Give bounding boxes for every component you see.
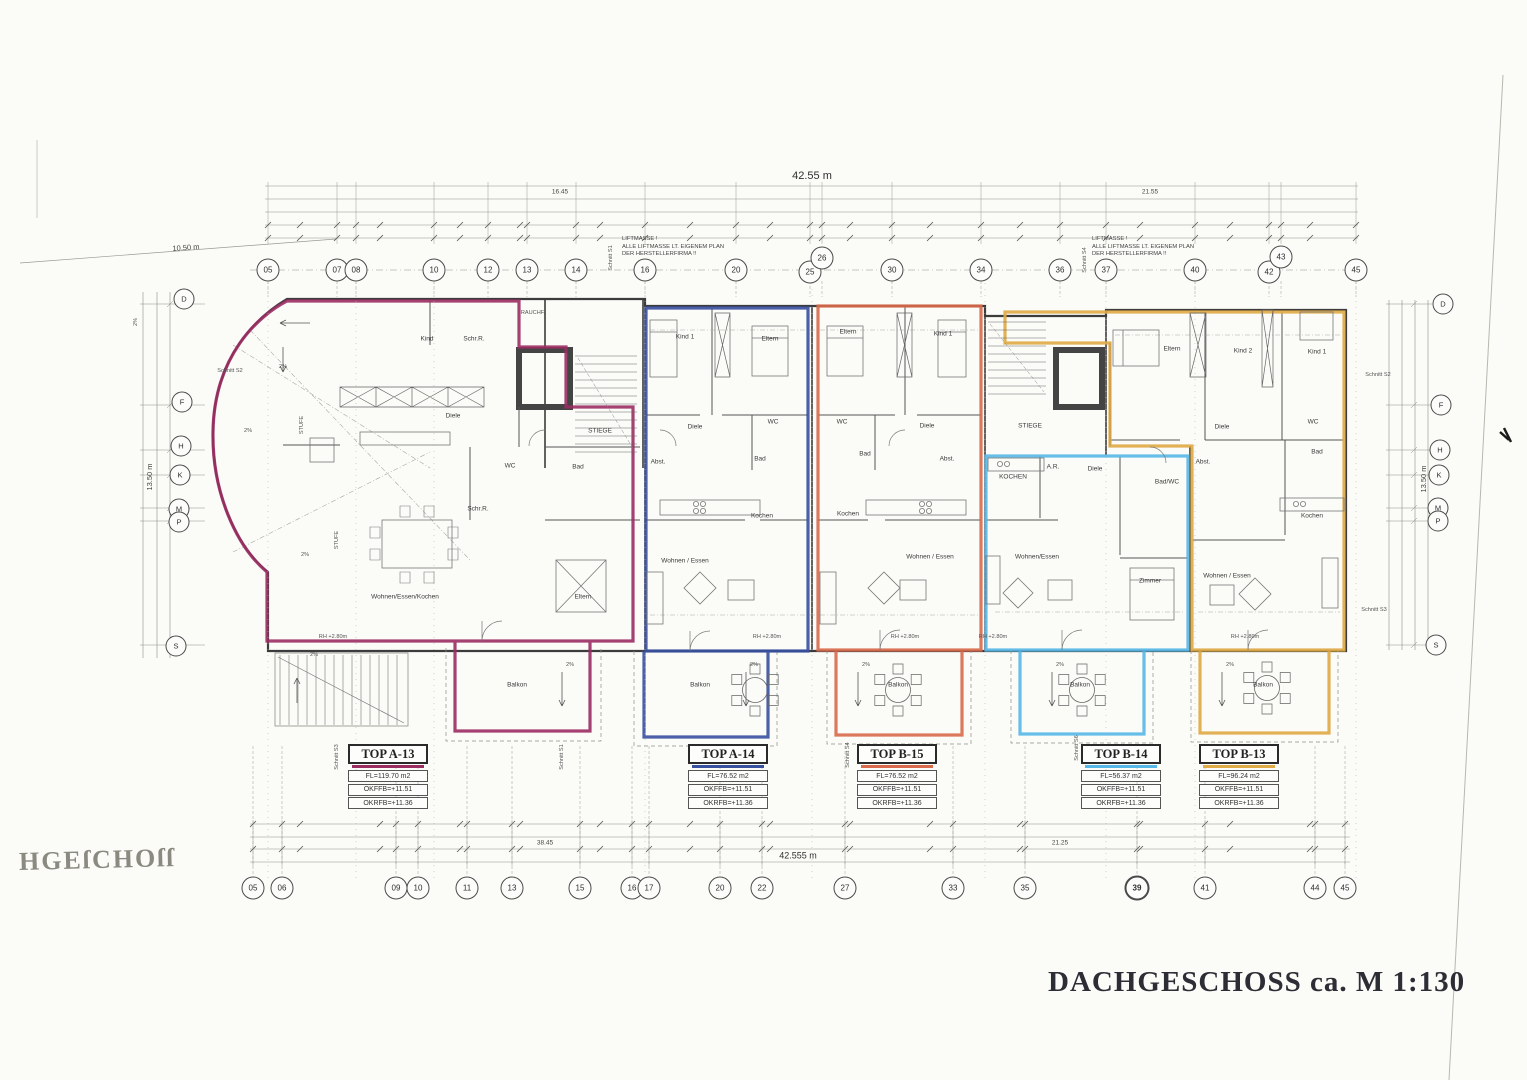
lift-note: LIFTMASSE ! ALLE LIFTMASSE LT. EIGENEM P… (1092, 236, 1194, 259)
lift-note-line: ALLE LIFTMASSE LT. EIGENEM PLAN (1092, 244, 1194, 252)
slope-label: 2% (134, 318, 140, 326)
stair-label: STIEGE (588, 429, 612, 436)
room-height-label: RH +2.80m (891, 635, 919, 641)
room-label: Bad (859, 452, 871, 459)
room-label: WC (768, 420, 779, 427)
room-label: Abst. (1196, 460, 1211, 467)
grid-bubble: 10 (407, 877, 430, 900)
grid-letter: H (171, 436, 192, 457)
room-height-label: RH +2.80m (319, 635, 347, 641)
grid-letter: K (170, 465, 191, 486)
grid-bubble: 13 (516, 259, 539, 282)
room-height-label: RH +2.80m (1231, 635, 1259, 641)
step-label: STUFE (335, 531, 341, 549)
room-label: Kind 1 (934, 332, 952, 339)
unit-color-bar (1085, 765, 1157, 768)
grid-bubble: 17 (638, 877, 661, 900)
grid-bubble: 20 (725, 259, 748, 282)
unit-color-bar (861, 765, 933, 768)
room-label: Kochen (1301, 514, 1323, 521)
grid-letter: F (172, 392, 193, 413)
grid-bubble: 34 (970, 259, 993, 282)
room-label: Wohnen / Essen (1203, 574, 1251, 581)
room-label: Kind 1 (676, 335, 694, 342)
room-label: Diele (688, 425, 703, 432)
unit-okffb: OKFFB=+11.51 (348, 784, 428, 796)
sheet-corner-label: HGEſCHOſſ (19, 843, 176, 877)
unit-area: FL=56.37 m2 (1081, 770, 1161, 782)
room-height-label: RH +2.80m (979, 635, 1007, 641)
room-label: Kind 2 (1234, 349, 1252, 356)
room-label: Kind 1 (1308, 350, 1326, 357)
room-label: Wohnen/Essen (1015, 555, 1059, 562)
grid-letter: P (1428, 511, 1449, 532)
slope-label: 2% (1056, 663, 1064, 669)
grid-bubble: 44 (1304, 877, 1327, 900)
unit-okrfb: OKRFB=+11.36 (857, 797, 937, 809)
room-label: Wohnen / Essen (906, 555, 954, 562)
room-label: Diele (1088, 467, 1103, 474)
room-label: Bad/WC (1155, 480, 1179, 487)
unit-okffb: OKFFB=+11.51 (857, 784, 937, 796)
slope-label: 2% (750, 663, 758, 669)
section-label: Schnitt S2 (217, 369, 243, 375)
grid-letter: S (1426, 635, 1447, 656)
grid-bubble: 20 (709, 877, 732, 900)
slope-label: 2% (279, 365, 287, 371)
dim-sub: 16.45 (552, 190, 568, 197)
lift-note-line: DER HERSTELLERFIRMA !! (622, 251, 724, 259)
unit-okrfb: OKRFB=+11.36 (688, 797, 768, 809)
slope-label: 2% (566, 663, 574, 669)
grid-bubble: 30 (881, 259, 904, 282)
sheet-title: DACHGESCHOSS ca. M 1:130 (1048, 966, 1465, 999)
room-label: Schr.R. (463, 337, 484, 344)
grid-bubble: 14 (565, 259, 588, 282)
dim-total-bottom: 42.555 m (779, 851, 817, 860)
room-label: Kind (420, 337, 433, 344)
grid-bubble: 45 (1345, 259, 1368, 282)
room-label: Wohnen / Essen (661, 559, 709, 566)
section-label: Schnitt S1 (609, 245, 615, 271)
grid-bubble: 16 (634, 259, 657, 282)
unit-okffb: OKFFB=+11.51 (688, 784, 768, 796)
grid-bubble: 06 (271, 877, 294, 900)
unit-legend-a13: TOP A-13 FL=119.70 m2 OKFFB=+11.51 OKRFB… (348, 744, 428, 809)
room-label: KOCHEN (999, 475, 1027, 482)
unit-title: TOP B-15 (857, 744, 937, 764)
unit-legend-b13: TOP B-13 FL=96.24 m2 OKFFB=+11.51 OKRFB=… (1199, 744, 1279, 809)
unit-area: FL=76.52 m2 (857, 770, 937, 782)
unit-title: TOP B-13 (1199, 744, 1279, 764)
room-label: Balkon (690, 683, 710, 690)
grid-letter: F (1431, 395, 1452, 416)
grid-bubble: 39 (1125, 876, 1150, 901)
grid-letter: D (174, 289, 195, 310)
lift-note: LIFTMASSE ! ALLE LIFTMASSE LT. EIGENEM P… (622, 236, 724, 259)
grid-bubble: 33 (942, 877, 965, 900)
room-label: Balkon (1253, 683, 1273, 690)
grid-bubble: 12 (477, 259, 500, 282)
room-label: Bad (572, 465, 584, 472)
grid-bubble: 13 (501, 877, 524, 900)
unit-okrfb: OKRFB=+11.36 (1081, 797, 1161, 809)
room-label: Eltern (762, 337, 779, 344)
room-label: Diele (446, 414, 461, 421)
room-label: Wohnen/Essen/Kochen (371, 595, 439, 602)
grid-letter: D (1433, 294, 1454, 315)
unit-color-bar (352, 765, 424, 768)
dim-sub: 38.45 (537, 841, 553, 848)
grid-bubble: 15 (569, 877, 592, 900)
grid-letter: S (166, 636, 187, 657)
room-label: WC (837, 420, 848, 427)
lift-note-line: LIFTMASSE ! (1092, 236, 1194, 244)
section-label: Schnitt S4 (846, 742, 852, 768)
unit-title: TOP A-14 (688, 744, 768, 764)
room-label: Zimmer (1139, 579, 1161, 586)
room-label: Bad (1311, 450, 1323, 457)
room-label: Diele (1215, 425, 1230, 432)
room-height-label: RH +2.80m (753, 635, 781, 641)
lift-note-line: LIFTMASSE ! (622, 236, 724, 244)
floorplan-scan: 05 07 08 10 12 13 14 16 20 25 26 30 34 3… (0, 0, 1527, 1080)
unit-title: TOP A-13 (348, 744, 428, 764)
grid-bubble: 05 (242, 877, 265, 900)
dim-total-top: 42.55 m (792, 171, 832, 183)
dim-sub: 21.25 (1052, 841, 1068, 848)
grid-bubble: 09 (385, 877, 408, 900)
room-label: Eltern (840, 330, 857, 337)
room-label: Abst. (651, 460, 666, 467)
unit-legend-b15: TOP B-15 FL=76.52 m2 OKFFB=+11.51 OKRFB=… (857, 744, 937, 809)
room-label: Balkon (888, 683, 908, 690)
unit-legend-a14: TOP A-14 FL=76.52 m2 OKFFB=+11.51 OKRFB=… (688, 744, 768, 809)
grid-bubble: 22 (751, 877, 774, 900)
grid-letter: K (1429, 465, 1450, 486)
room-label: WC (505, 464, 516, 471)
room-label: Balkon (507, 683, 527, 690)
slope-label: 2% (1226, 663, 1234, 669)
dim-sub: 21.55 (1142, 190, 1158, 197)
grid-bubble: 40 (1184, 259, 1207, 282)
unit-color-bar (692, 765, 764, 768)
room-label: Eltern (1164, 347, 1181, 354)
unit-okrfb: OKRFB=+11.36 (348, 797, 428, 809)
room-label: A.R. (1047, 465, 1060, 472)
unit-area: FL=76.52 m2 (688, 770, 768, 782)
grid-bubble: 36 (1049, 259, 1072, 282)
room-label: Balkon (1070, 683, 1090, 690)
grid-bubble: 05 (257, 259, 280, 282)
unit-okffb: OKFFB=+11.51 (1081, 784, 1161, 796)
dim-left-height: 13.50 m (146, 463, 154, 490)
grid-bubble: 26 (811, 247, 834, 270)
slope-label: 2% (862, 663, 870, 669)
room-label: Diele (920, 424, 935, 431)
unit-okffb: OKFFB=+11.51 (1199, 784, 1279, 796)
grid-bubble: 08 (345, 259, 368, 282)
slope-label: 2% (310, 653, 318, 659)
grid-bubble: 35 (1014, 877, 1037, 900)
grid-letter: H (1430, 440, 1451, 461)
grid-bubble: 11 (456, 877, 479, 900)
unit-title: TOP B-14 (1081, 744, 1161, 764)
stair-label: STIEGE (1018, 424, 1042, 431)
grid-bubble: 27 (834, 877, 857, 900)
section-label: Schnitt S4 (1083, 247, 1089, 273)
room-label: Bad (754, 457, 766, 464)
unit-color-bar (1203, 765, 1275, 768)
room-label: WC (1308, 420, 1319, 427)
chimney-label: RAUCHF. (521, 311, 545, 317)
lift-note-line: ALLE LIFTMASSE LT. EIGENEM PLAN (622, 244, 724, 252)
slope-label: 2% (301, 553, 309, 559)
room-label: Kochen (751, 514, 773, 521)
section-label: Schnitt S3 (335, 744, 341, 770)
grid-bubble: 45 (1334, 877, 1357, 900)
section-label: Schnitt S3 (1361, 608, 1387, 614)
grid-bubble: 41 (1194, 877, 1217, 900)
unit-area: FL=119.70 m2 (348, 770, 428, 782)
lift-note-line: DER HERSTELLERFIRMA !! (1092, 251, 1194, 259)
room-label: Schr.R. (467, 507, 488, 514)
floorplan-deco (0, 0, 1527, 1080)
grid-bubble: 43 (1270, 246, 1293, 269)
slope-label: 2% (244, 429, 252, 435)
unit-area: FL=96.24 m2 (1199, 770, 1279, 782)
room-label: Eltern (575, 595, 592, 602)
dim-right-height: 13.50 m (1420, 465, 1428, 492)
step-label: STUFE (300, 416, 306, 434)
unit-legend-b14: TOP B-14 FL=56.37 m2 OKFFB=+11.51 OKRFB=… (1081, 744, 1161, 809)
grid-bubble: 10 (423, 259, 446, 282)
room-label: Kochen (837, 512, 859, 519)
section-label: Schnitt S1 (560, 744, 566, 770)
room-label: Abst. (940, 457, 955, 464)
grid-letter: P (169, 512, 190, 533)
grid-bubble: 37 (1095, 259, 1118, 282)
unit-okrfb: OKRFB=+11.36 (1199, 797, 1279, 809)
section-label: Schnitt S2 (1365, 373, 1391, 379)
